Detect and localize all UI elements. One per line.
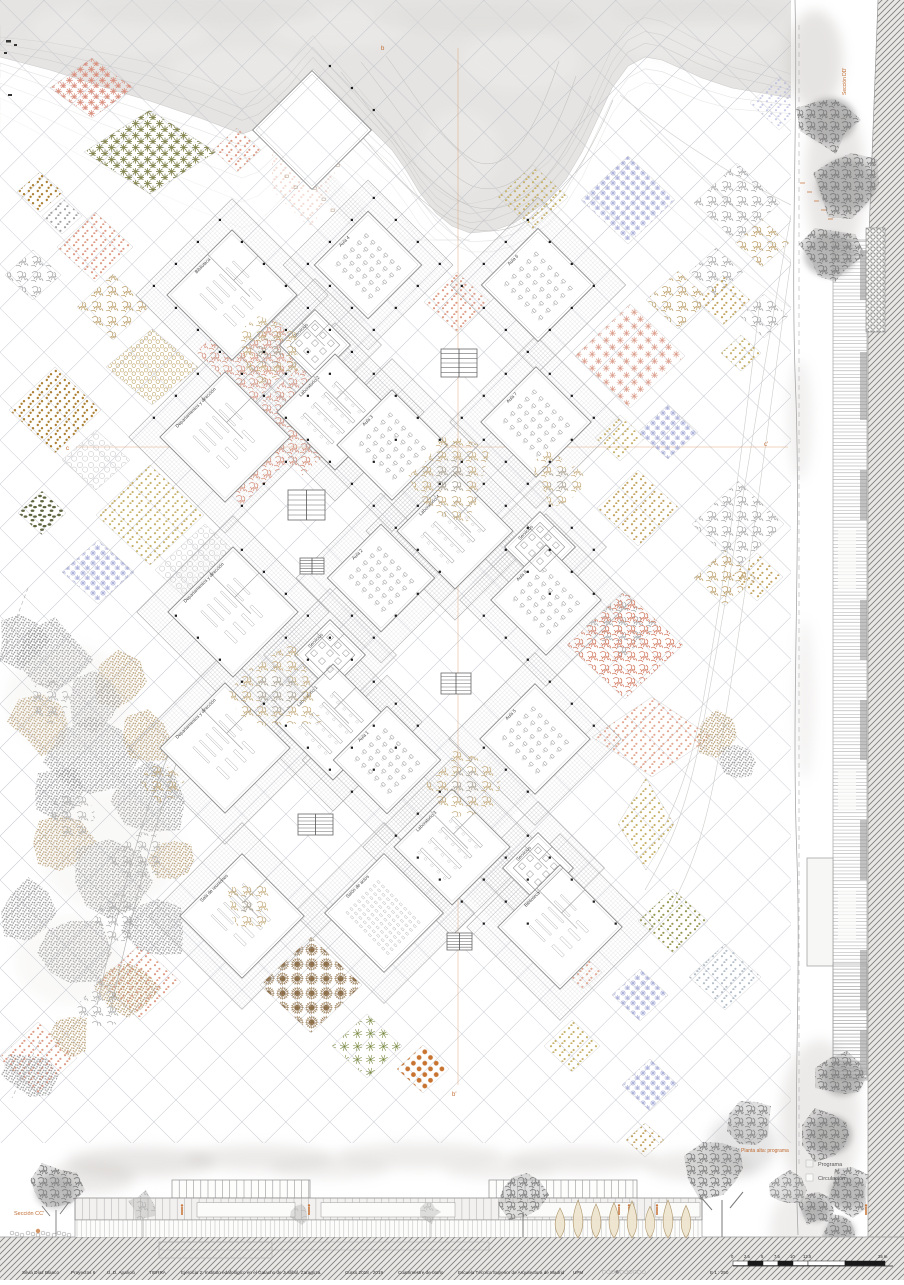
svg-text:25 m: 25 m xyxy=(878,1254,888,1259)
svg-text:Programa: Programa xyxy=(818,1162,843,1168)
svg-text:c: c xyxy=(66,446,69,452)
svg-text:Circulación: Circulación xyxy=(818,1176,845,1182)
svg-text:U. D. Aparicio: U. D. Aparicio xyxy=(107,1270,136,1275)
svg-text:Silvia Díaz Blanco: Silvia Díaz Blanco xyxy=(22,1270,59,1275)
svg-text:Sección CC': Sección CC' xyxy=(14,1211,44,1217)
svg-text:2.5: 2.5 xyxy=(744,1254,750,1259)
svg-text:c': c' xyxy=(764,442,768,448)
svg-text:E 1 : 250: E 1 : 250 xyxy=(710,1270,729,1275)
svg-text:Ejercicio 2: Instituto edafoló: Ejercicio 2: Instituto edafológico en el… xyxy=(181,1270,321,1275)
svg-text:Cuatrimestre de otoño: Cuatrimestre de otoño xyxy=(398,1270,444,1275)
svg-text:Planta alta: programa: Planta alta: programa xyxy=(741,1148,789,1154)
svg-text:TIERRA: TIERRA xyxy=(149,1270,167,1275)
svg-text:7.5: 7.5 xyxy=(774,1254,780,1259)
svg-text:Sección DD': Sección DD' xyxy=(842,68,848,95)
svg-text:12.5: 12.5 xyxy=(803,1254,812,1259)
svg-text:UPM: UPM xyxy=(573,1270,583,1275)
svg-text:Proyectos 6: Proyectos 6 xyxy=(71,1270,96,1275)
svg-text:Curso 2018 - 2019: Curso 2018 - 2019 xyxy=(345,1270,383,1275)
svg-text:b': b' xyxy=(452,1092,456,1098)
svg-text:Escuela Técnica Superior de Ar: Escuela Técnica Superior de Arquitectura… xyxy=(458,1270,565,1275)
svg-text:10: 10 xyxy=(790,1254,795,1259)
